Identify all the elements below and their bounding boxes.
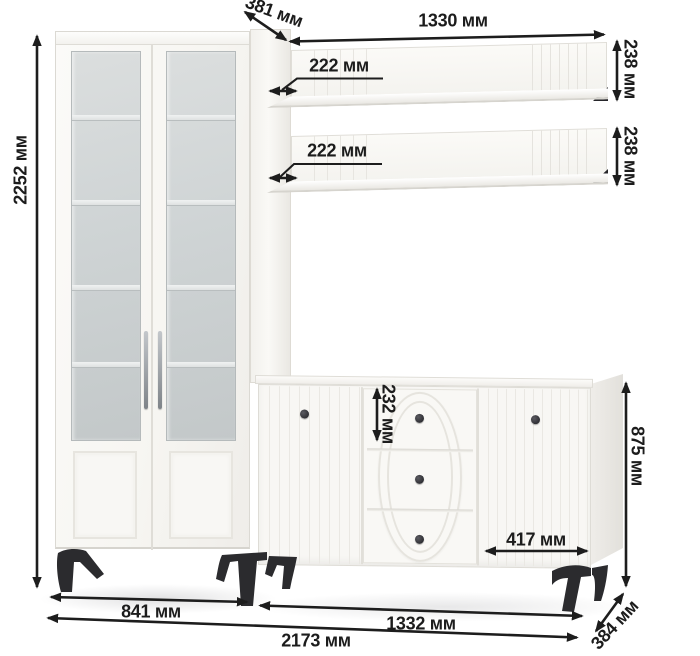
cabinet-cornice (56, 32, 249, 45)
shelf-grooves (302, 135, 374, 183)
dim-label-upper-depth: 381 мм (242, 0, 305, 32)
dim-label-sideboard-width: 1332 мм (386, 614, 456, 635)
cabinet-handle-left (144, 331, 148, 409)
shelf-grooves (524, 43, 588, 91)
sideboard-leg-back-right (592, 565, 608, 601)
cabinet-glass-door-right (166, 51, 236, 441)
floor-shadow-cabinet (38, 584, 278, 614)
cabinet-inner-shelf (72, 285, 140, 291)
sideboard-divider (477, 388, 479, 565)
cabinet-inner-shelf (167, 285, 235, 291)
cabinet-lower-panel-left (73, 451, 137, 539)
cabinet-leg-front-left (57, 549, 104, 592)
sideboard-side-face (591, 374, 623, 565)
drawer-knob (415, 535, 424, 544)
dim-label-shelf-length: 1330 мм (418, 11, 488, 32)
shelf-grooves (524, 129, 588, 177)
cabinet-inner-shelf (167, 200, 235, 206)
dim-line-sideboard-width (260, 606, 582, 617)
cabinet-lower-panel-right (169, 451, 233, 539)
furniture-dimension-diagram: 2252 мм 381 мм 1330 мм 222 мм 222 мм 238… (0, 0, 700, 656)
cabinet-inner-shelf (72, 200, 140, 206)
door-knob (300, 409, 309, 418)
dim-label-shelf-bottom-height: 238 мм (620, 126, 641, 186)
cabinet-inner-shelf (72, 362, 140, 368)
sideboard-door-left (260, 386, 360, 564)
door-knob (531, 415, 540, 424)
sideboard (258, 384, 591, 569)
drawer-knob (415, 475, 424, 484)
dim-label-total-height: 2252 мм (11, 135, 32, 205)
cabinet-glass-door-left (71, 51, 141, 441)
dim-label-sideboard-height: 875 мм (627, 426, 648, 486)
dim-label-shelf-top-height: 238 мм (620, 39, 641, 99)
cabinet-inner-shelf (167, 115, 235, 121)
floor-shadow-sideboard (255, 592, 635, 622)
dim-label-sideboard-depth: 384 мм (587, 596, 643, 654)
shelf-grooves (302, 49, 374, 97)
cabinet-inner-shelf (72, 115, 140, 121)
sideboard-leg-front-right (552, 565, 591, 612)
drawer-knob (415, 414, 424, 423)
cabinet-door-gap (151, 45, 153, 550)
cabinet-handle-right (158, 331, 162, 409)
dim-label-cabinet-width: 841 мм (121, 602, 181, 623)
cabinet-inner-shelf (167, 362, 235, 368)
dim-line-cabinet-width (51, 597, 247, 602)
dim-line-shelf-length (290, 35, 604, 42)
display-cabinet (55, 31, 250, 549)
dim-label-total-width: 2173 мм (281, 631, 351, 652)
dim-line-sideboard-depth (596, 594, 623, 631)
dim-line-total-width (48, 618, 577, 638)
wall-unit-column-panel (250, 29, 291, 383)
